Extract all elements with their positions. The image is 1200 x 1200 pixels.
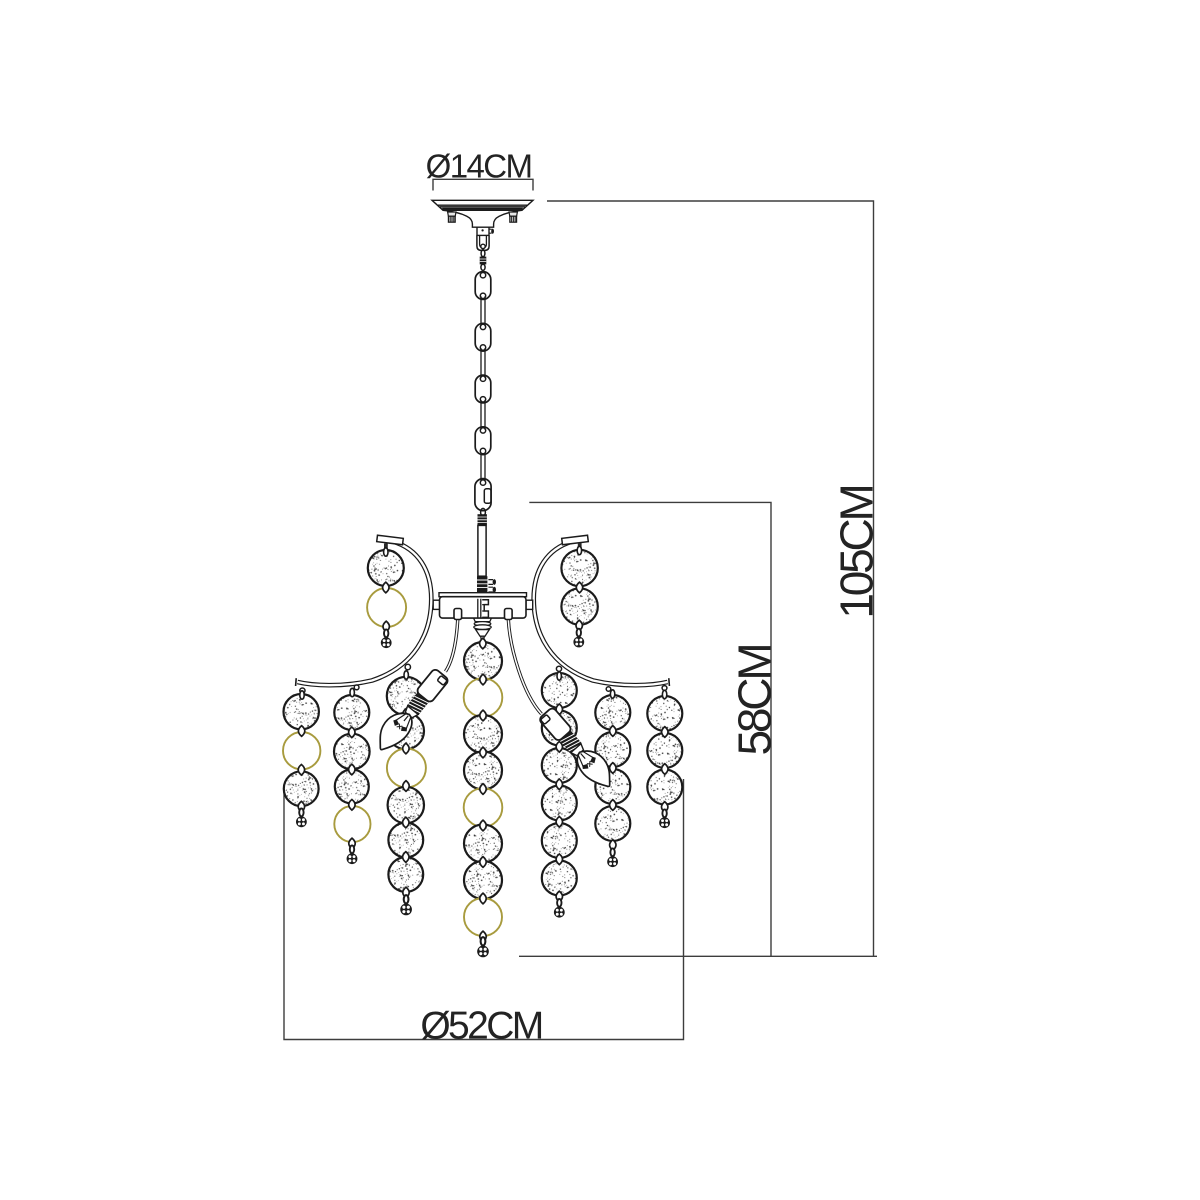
svg-text:Ø52CM: Ø52CM	[420, 1005, 541, 1048]
svg-text:Ø14CM: Ø14CM	[426, 148, 532, 185]
svg-text:105CM: 105CM	[831, 486, 883, 618]
svg-text:58CM: 58CM	[729, 646, 781, 756]
